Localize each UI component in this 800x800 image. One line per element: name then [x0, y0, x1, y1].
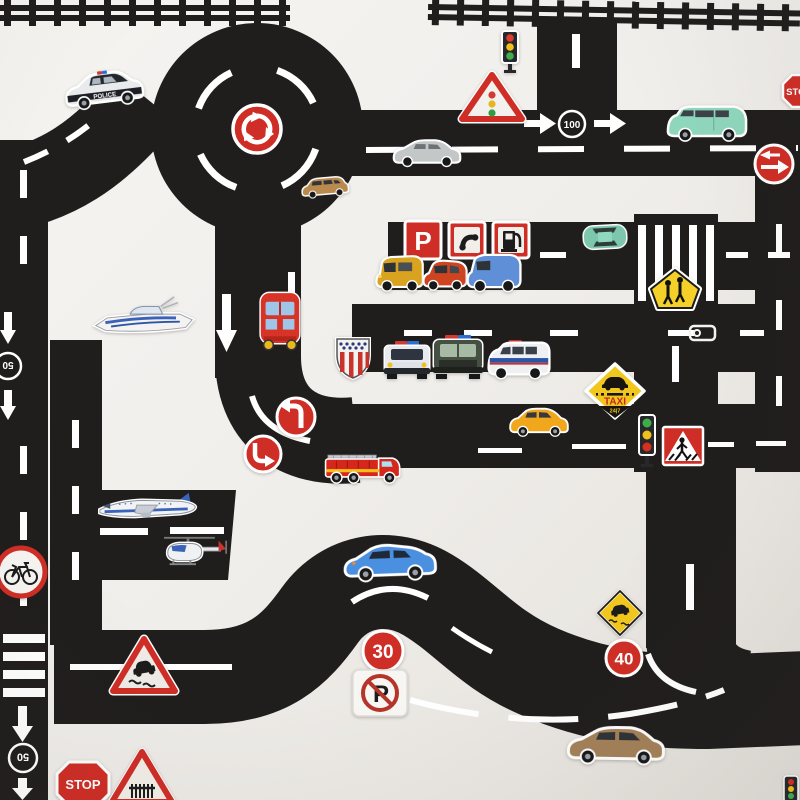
car-yellow-sticker: [508, 404, 570, 440]
road-lower-horizontal: [352, 404, 800, 468]
sports-car-blue-sticker: [341, 539, 438, 582]
speed-50-label-2: 50: [17, 751, 29, 763]
airliner-sticker: [95, 490, 203, 524]
playmat-photo: 100 50 50: [0, 0, 800, 800]
us-route-shield-sticker: [334, 335, 372, 381]
traffic-light-sticker-corner: [782, 774, 800, 800]
stop-label: STOP: [786, 87, 800, 98]
sedan-gray-sticker: [392, 137, 462, 168]
speed-limit-30-sign: 30: [361, 629, 405, 673]
stop-sign-bottom: STOP: [55, 760, 111, 800]
traffic-light-warning-triangle: [459, 72, 525, 122]
van-blue-sticker: [465, 250, 523, 292]
pedestrian-crossing-sign: [661, 425, 705, 467]
no-parking-sticker: P: [351, 668, 409, 718]
traffic-light-sticker-middle: [636, 413, 658, 469]
taxi-hours-label: 24|7: [610, 409, 621, 415]
station-wagon-tan-sticker: [299, 168, 352, 206]
yacht-sticker: [92, 295, 197, 337]
car-red-sticker: [421, 256, 469, 292]
speed-limit-40-sign: 40: [604, 638, 644, 678]
turn-left-sign-lower: [243, 434, 283, 474]
railway-crossing-sign: [108, 748, 176, 800]
traffic-light-icon: [488, 91, 495, 116]
car-top-view-teal-sticker: [581, 222, 628, 252]
minivan-mint-sticker: [665, 103, 749, 143]
stop-label: STOP: [65, 777, 100, 792]
slippery-road-diamond-sign: [596, 589, 644, 637]
slippery-road-triangle-sign: [109, 635, 179, 697]
mandatory-arrows-sign: [753, 143, 795, 185]
taxi-stand-sign: TAXI 24|7: [584, 362, 646, 420]
taxi-label: TAXI: [604, 397, 626, 408]
fire-truck-sticker: [324, 448, 402, 484]
helicopter-sticker: [160, 535, 232, 567]
police-suv-front-sticker: [429, 334, 487, 380]
turn-left-sign-upper: [275, 396, 317, 438]
speed-30-label: 30: [372, 642, 393, 663]
traffic-light-sticker-top: [497, 30, 523, 74]
sedan-brown-sticker: [566, 723, 667, 765]
van-yellow-sticker: [374, 252, 426, 292]
railway-track: [0, 0, 800, 31]
stop-sign-right-edge: STOP: [781, 74, 800, 108]
police-car-front-sticker: [380, 340, 434, 380]
roundabout-sign: [231, 103, 283, 155]
police-van-sticker: [486, 339, 552, 379]
city-bus-red-sticker: [256, 290, 304, 350]
speed-50-label: 50: [2, 359, 14, 370]
speed-40-label: 40: [615, 650, 634, 669]
road-right-lower-vertical: [646, 468, 736, 648]
speed-100-label: 100: [564, 120, 581, 131]
school-crossing-sign: [649, 268, 701, 310]
no-bicycles-sign: [0, 545, 48, 599]
